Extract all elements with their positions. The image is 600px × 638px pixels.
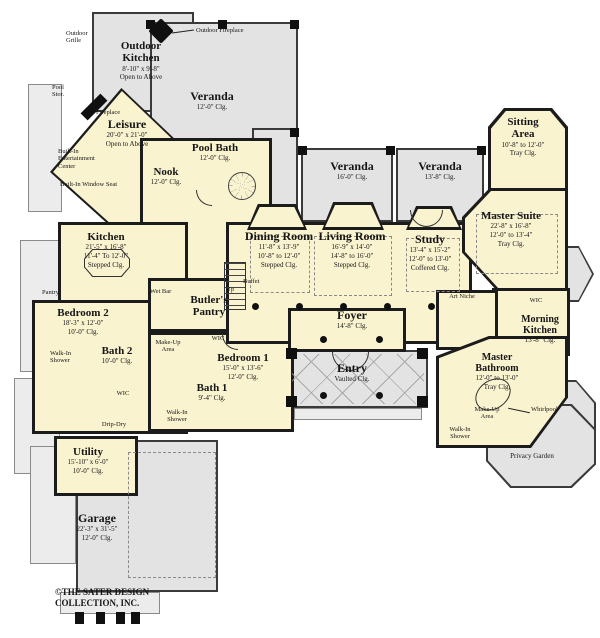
- wic-label: WIC: [112, 390, 134, 397]
- column: [298, 146, 307, 155]
- nook-label: Nook 12'-0" Clg.: [136, 166, 196, 187]
- garage-post: [116, 612, 125, 624]
- garage-post: [131, 612, 140, 624]
- whirlpool-label: Whirlpool: [531, 406, 573, 413]
- column: [417, 396, 428, 407]
- room-name: Master Bathroom: [461, 352, 533, 374]
- room-name: Living Room: [304, 230, 400, 243]
- walk-in-shower-label: Walk-In Shower: [443, 426, 477, 441]
- drip-dry-label: Drip-Dry: [98, 421, 130, 428]
- outdoor-grille-label: Outdoor Grille: [66, 30, 100, 45]
- morning-kitchen-label: Morning Kitchen 13'-8" Clg.: [510, 314, 570, 345]
- wic-label: WIC: [525, 297, 547, 304]
- pool-stor-label: Pool Stor.: [52, 84, 76, 99]
- room-name: Morning Kitchen: [510, 314, 570, 336]
- garage-post: [96, 612, 105, 624]
- make-up-area-label: Make-Up Area: [149, 339, 187, 354]
- column: [290, 20, 299, 29]
- column: [477, 146, 486, 155]
- porch-strip: [28, 84, 62, 212]
- room-name: Bedroom 2: [38, 307, 128, 319]
- sitting-area-label: Sitting Area 10'-8" to 12'-0" Tray Clg.: [497, 116, 549, 158]
- column: [290, 128, 299, 137]
- column: [417, 348, 428, 359]
- pool-bath-label: Pool Bath 12'-0" Clg.: [180, 142, 250, 163]
- room-name: Bath 1: [187, 382, 237, 394]
- veranda-top-label: Veranda 12'-0" Clg.: [177, 90, 247, 112]
- room-name: Master Suite: [466, 210, 556, 222]
- butlers-pantry-label: Butler's Pantry: [181, 294, 237, 319]
- room-name: Veranda: [177, 90, 247, 103]
- foyer-column: [296, 303, 303, 310]
- column: [286, 396, 297, 407]
- entry-column: [376, 336, 383, 343]
- wic-label: WIC: [207, 335, 229, 342]
- room-name: Sitting Area: [497, 116, 549, 141]
- wet-bar-label: Wet Bar: [150, 288, 182, 295]
- entry-column: [376, 392, 383, 399]
- spiral-stair: [228, 172, 256, 200]
- art-niche-label: Art Niche: [448, 293, 476, 300]
- fireplace-label: Fireplace: [96, 109, 146, 116]
- room-name: Leisure: [87, 118, 167, 131]
- foyer-column: [252, 303, 259, 310]
- bedroom2-label: Bedroom 2 18'-3" x 12'-0" 10'-0" Clg.: [38, 307, 128, 337]
- column: [146, 20, 155, 29]
- master-bathroom-label: Master Bathroom 12'-0" to 13'-0" Tray Cl…: [461, 352, 533, 392]
- room-name: Veranda: [317, 160, 387, 173]
- up-label: Up: [226, 286, 240, 293]
- room-name: Bedroom 1: [203, 352, 283, 364]
- veranda-mid-left-label: Veranda 16'-0" Clg.: [317, 160, 387, 182]
- room-name: Kitchen: [68, 231, 144, 243]
- room-name: Veranda: [405, 160, 475, 173]
- room-name: Utility: [53, 446, 123, 458]
- room-name: Entry: [317, 362, 387, 375]
- walk-in-shower-label: Walk-In Shower: [160, 409, 194, 424]
- walk-in-shower-label: Walk-In Shower: [50, 350, 86, 365]
- study-label: Study 13'-4" x 15'-2" 12'-0" to 13'-0" C…: [395, 233, 465, 273]
- room-name: Butler's Pantry: [181, 294, 237, 319]
- pantry-label: Pantry: [42, 289, 72, 296]
- column: [386, 146, 395, 155]
- room-name: Study: [395, 233, 465, 246]
- entry-label: Entry Vaulted Clg.: [317, 362, 387, 384]
- living-room-label: Living Room 16'-9" x 14'-0" 14'-8" to 16…: [304, 230, 400, 270]
- room-name: Foyer: [317, 309, 387, 322]
- veranda-mid-right-label: Veranda 13'-8" Clg.: [405, 160, 475, 182]
- privacy-garden-label: Privacy Garden: [487, 452, 577, 461]
- make-up-area-label: Make-Up Area: [468, 406, 506, 421]
- floor-plan: Outdoor Kitchen 8'-10" x 9'-8" Open to A…: [0, 0, 600, 638]
- bedroom1-label: Bedroom 1 15'-0" x 13'-6" 12'-0" Clg.: [203, 352, 283, 382]
- column: [286, 348, 297, 359]
- garage-label: Garage 22'-3" x 31'-5" 12'-0" Clg.: [52, 512, 142, 543]
- room-name: Outdoor Kitchen: [106, 40, 176, 65]
- entry-column: [320, 336, 327, 343]
- room-name: Bath 2: [87, 345, 147, 357]
- room-name: Garage: [52, 512, 142, 525]
- outdoor-fireplace-label: Outdoor Fireplace: [196, 27, 286, 34]
- garage-post: [75, 612, 84, 624]
- built-in-window-seat-label: Built-In Window Seat: [60, 181, 124, 188]
- entry-column: [320, 392, 327, 399]
- kitchen-label: Kitchen 21'-5" x 16'-8" 11'-4" To 12'-0"…: [68, 231, 144, 270]
- outdoor-kitchen-label: Outdoor Kitchen 8'-10" x 9'-8" Open to A…: [106, 40, 176, 82]
- foyer-column: [428, 303, 435, 310]
- foyer-label: Foyer 14'-8" Clg.: [317, 309, 387, 331]
- room-name: Pool Bath: [180, 142, 250, 154]
- bath1-label: Bath 1 9'-4" Clg.: [187, 382, 237, 403]
- leisure-label: Leisure 20'-0" x 21'-0" Open to Above: [87, 118, 167, 149]
- bath2-label: Bath 2 10'-0" Clg.: [87, 345, 147, 366]
- buffet-label: Buffet: [243, 278, 271, 285]
- copyright: ©THE SATER DESIGN COLLECTION, INC.: [55, 587, 165, 610]
- master-suite-label: Master Suite 22'-8" x 16'-8" 12'-0" to 1…: [466, 210, 556, 249]
- entry-step: [294, 408, 422, 420]
- built-in-ent-label: Built-In Entertainment Center: [58, 148, 110, 170]
- room-name: Nook: [136, 166, 196, 178]
- utility-label: Utility 15'-10" x 6'-0" 10'-0" Clg.: [53, 446, 123, 476]
